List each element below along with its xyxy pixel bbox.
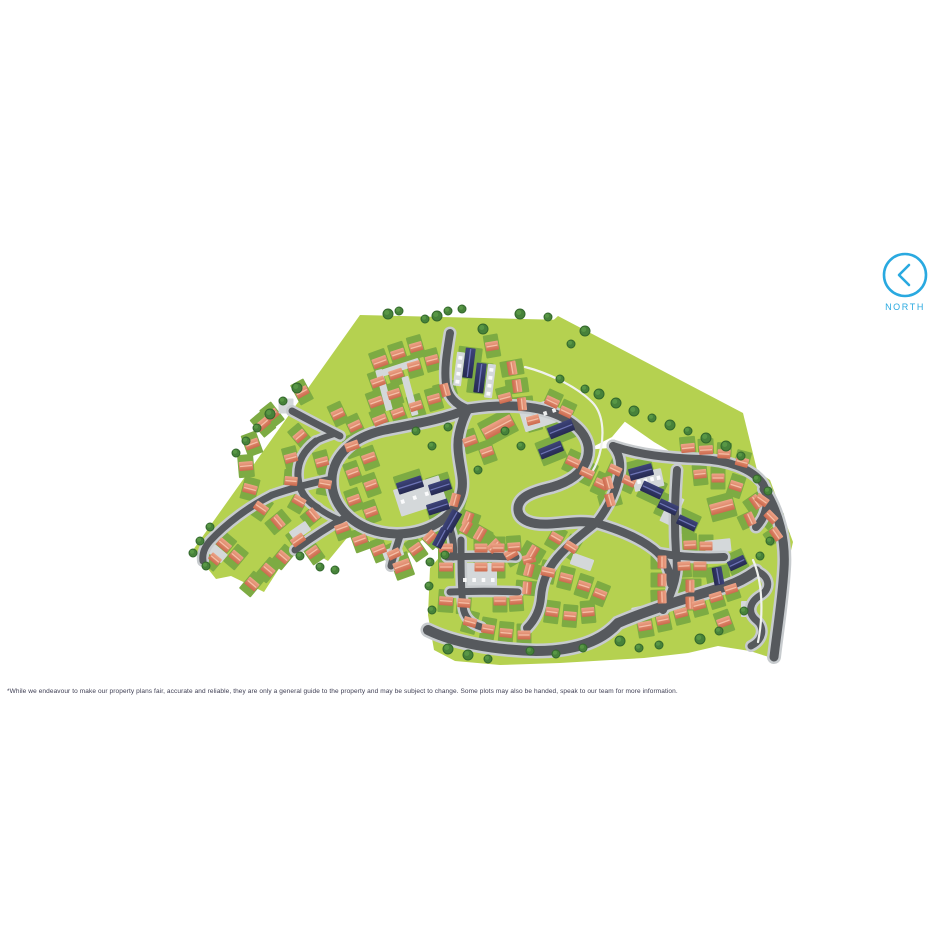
tree [737, 452, 745, 460]
tree [766, 537, 774, 545]
tree [753, 475, 761, 483]
tree [232, 449, 240, 457]
house [693, 469, 707, 479]
north-compass-icon[interactable] [881, 251, 929, 299]
tree [544, 313, 552, 321]
house [509, 595, 523, 605]
house [512, 379, 523, 393]
house [658, 574, 667, 587]
tree [296, 552, 304, 560]
tree [441, 551, 449, 559]
tree [517, 442, 525, 450]
house [494, 597, 507, 606]
house [522, 581, 532, 595]
house [439, 596, 454, 606]
tree [242, 437, 250, 445]
house [475, 563, 488, 572]
house [681, 443, 696, 453]
tree [764, 487, 772, 495]
north-label: NORTH [879, 302, 931, 312]
tree [655, 641, 663, 649]
house [545, 607, 559, 618]
house [683, 540, 696, 550]
house [581, 607, 595, 617]
house [517, 397, 527, 411]
road [658, 553, 724, 557]
tree [383, 309, 393, 319]
house [694, 562, 707, 571]
house [439, 563, 453, 572]
house [686, 580, 695, 593]
house [677, 561, 690, 571]
tree [421, 315, 429, 323]
plan-disclaimer: *While we endeavour to make our property… [7, 688, 678, 695]
tree [501, 427, 509, 435]
tree [331, 566, 339, 574]
tree [316, 563, 324, 571]
tree [635, 644, 643, 652]
tree [444, 423, 452, 431]
road [450, 591, 518, 592]
tree [721, 441, 731, 451]
tree [412, 427, 420, 435]
house [657, 590, 666, 603]
tree [615, 636, 625, 646]
tree [265, 409, 275, 419]
tree [701, 433, 711, 443]
tree [189, 549, 197, 557]
tree [474, 466, 482, 474]
tree [665, 420, 675, 430]
tree [426, 558, 434, 566]
tree [695, 634, 705, 644]
house [518, 631, 531, 640]
tree [196, 537, 204, 545]
tree [395, 307, 403, 315]
house [712, 474, 725, 483]
tree [463, 650, 473, 660]
tree [279, 397, 287, 405]
tree [552, 650, 560, 658]
house [457, 598, 471, 608]
tree [594, 389, 604, 399]
house [700, 542, 713, 551]
tree [740, 607, 748, 615]
tree [458, 305, 466, 313]
tree [580, 326, 590, 336]
house [699, 445, 713, 455]
tree [611, 398, 621, 408]
tree [432, 311, 442, 321]
tree [425, 582, 433, 590]
site-plan-page: NORTH *While we endeavour to make our pr… [0, 0, 945, 945]
tree [206, 523, 214, 531]
tree [581, 385, 589, 393]
tree [567, 340, 575, 348]
tree [684, 427, 692, 435]
tree [515, 309, 525, 319]
chevron-left-icon [899, 265, 909, 285]
house [563, 611, 577, 621]
tree [253, 424, 261, 432]
tree [292, 383, 302, 393]
tree [715, 627, 723, 635]
house [284, 476, 298, 486]
house [492, 544, 505, 553]
tree [629, 406, 639, 416]
tree [202, 562, 210, 570]
tree [556, 375, 564, 383]
tree [579, 644, 587, 652]
north-control[interactable]: NORTH [879, 251, 931, 312]
house [475, 544, 488, 553]
tree [756, 552, 764, 560]
tree [648, 414, 656, 422]
tree [526, 647, 534, 655]
tree [478, 324, 488, 334]
tree [443, 644, 453, 654]
house [658, 556, 667, 569]
site-plan-map [0, 0, 945, 945]
tree [428, 606, 436, 614]
tree [444, 307, 452, 315]
tree [428, 442, 436, 450]
tree [484, 655, 492, 663]
house [499, 628, 513, 638]
house [507, 542, 521, 552]
house [239, 461, 254, 471]
house [492, 563, 505, 572]
